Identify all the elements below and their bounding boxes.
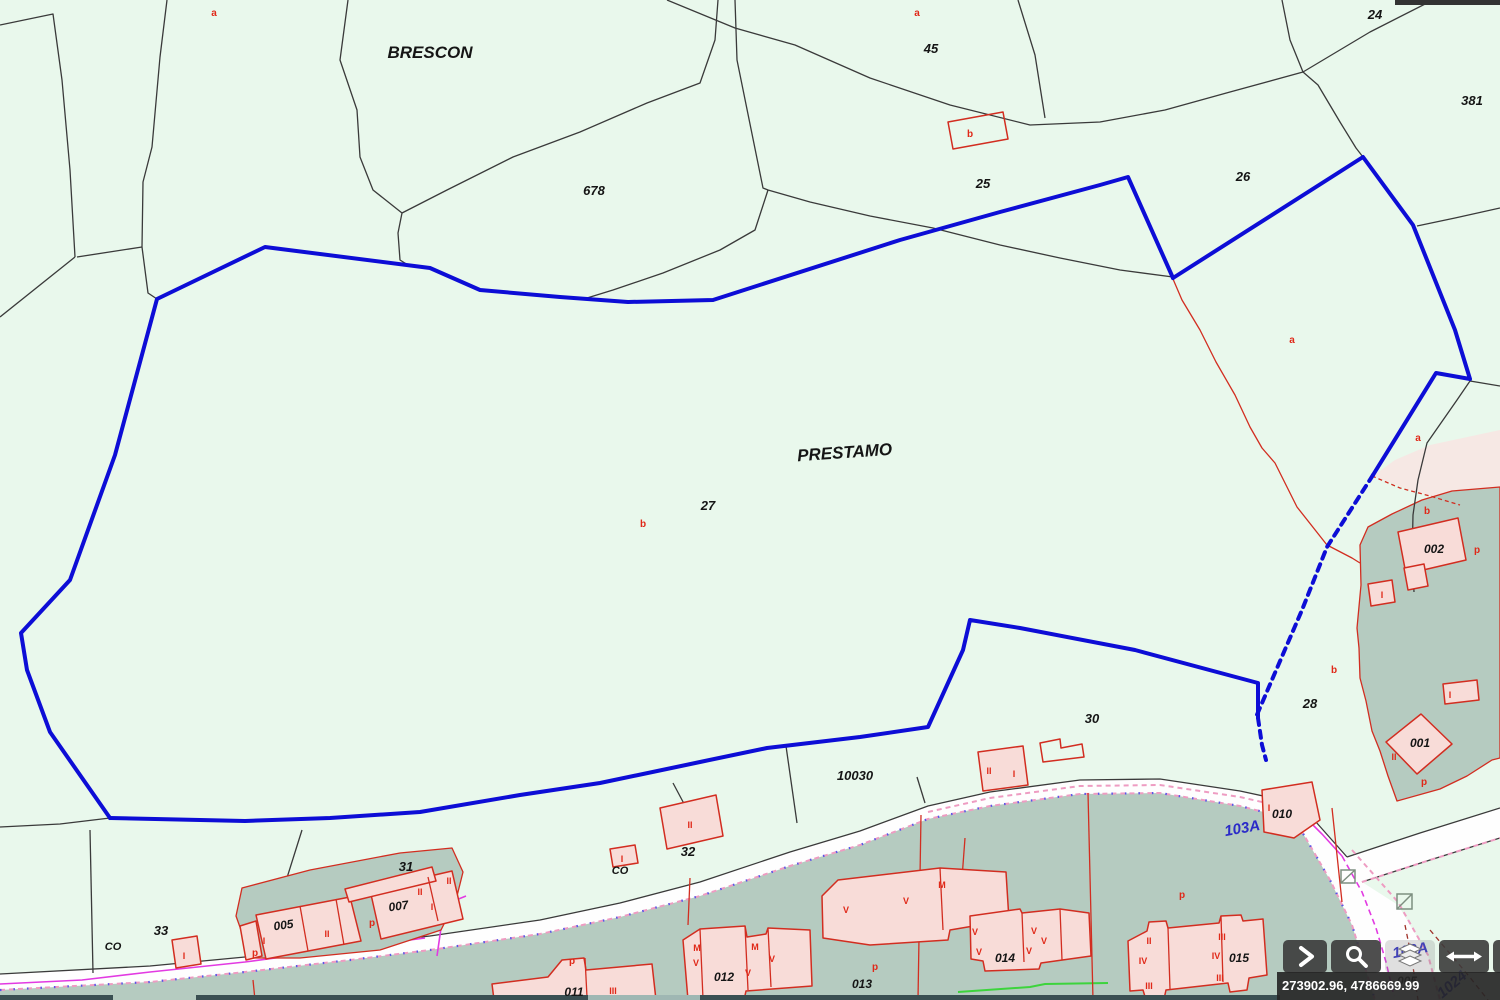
subparcel-code-label: p (252, 948, 258, 959)
subparcel-code-label: V (693, 958, 699, 968)
cadastral-map[interactable]: BRESCONPRESTAMO6784525262438127301003028… (0, 0, 1500, 1000)
subparcel-code-label: a (1415, 433, 1421, 444)
subparcel-code-label: b (1331, 665, 1337, 676)
parcel-label: 002 (1424, 542, 1444, 556)
subparcel-code-label: V (769, 954, 775, 964)
subparcel-code-label: IV (1139, 956, 1148, 966)
subparcel-code-label: b (1424, 506, 1430, 517)
parcel-label: 678 (583, 183, 605, 198)
subparcel-code-label: I (1449, 690, 1452, 700)
subparcel-code-label: V (1031, 926, 1037, 936)
subparcel-code-label: II (986, 766, 991, 776)
next-button[interactable] (1283, 940, 1327, 973)
subparcel-code-label: V (1041, 936, 1047, 946)
parcel-label: 27 (700, 498, 716, 513)
resize-horizontal-icon (1442, 940, 1486, 973)
parcel-label: 32 (681, 844, 696, 859)
subparcel-code-label: p (1474, 545, 1480, 556)
building-002-annex (1404, 564, 1428, 590)
parcel-label: BRESCON (387, 43, 473, 62)
parcel-label: CO (105, 941, 122, 953)
parcel-label: 26 (1235, 169, 1251, 184)
subparcel-code-label: a (914, 8, 920, 19)
parcel-label: 24 (1367, 7, 1383, 22)
parcel-label: 45 (923, 41, 939, 56)
parcel-label: 001 (1410, 736, 1430, 750)
parcel-label: 013 (852, 977, 872, 991)
parcel-label: 31 (399, 859, 413, 874)
subparcel-code-label: II (324, 929, 329, 939)
subparcel-code-label: I (621, 854, 624, 864)
subparcel-code-label: a (211, 8, 217, 19)
subparcel-code-label: p (1179, 890, 1185, 901)
subparcel-code-label: p (369, 918, 375, 929)
subparcel-code-label: II (687, 820, 692, 830)
subparcel-code-label: II (417, 887, 422, 897)
partial-button[interactable] (1493, 940, 1500, 973)
subparcel-code-label: a (1289, 335, 1295, 346)
parcel-label: 012 (714, 970, 734, 984)
layers-icon (1390, 940, 1430, 973)
search-button[interactable] (1331, 940, 1381, 973)
subparcel-code-label: p (569, 956, 575, 967)
subparcel-code-label: b (967, 129, 973, 140)
parcel-label: 25 (975, 176, 991, 191)
parcel-label: CO (612, 865, 629, 877)
subparcel-code-label: V (1026, 946, 1032, 956)
subparcel-code-label: III (1145, 981, 1153, 991)
building-32-small (610, 845, 638, 867)
subparcel-code-label: II (446, 876, 451, 886)
cursor-coordinates: 273902.96, 4786669.99 (1282, 978, 1419, 993)
map-viewer: BRESCONPRESTAMO6784525262438127301003028… (0, 0, 1500, 1000)
parcel-label: 30 (1085, 711, 1100, 726)
layers-button[interactable] (1385, 940, 1435, 973)
subparcel-code-label: M (938, 880, 946, 890)
subparcel-code-label: III (609, 986, 617, 996)
parcel-label: 28 (1302, 696, 1318, 711)
parcel-label: 005 (273, 917, 295, 934)
subparcel-code-label: I (1013, 769, 1016, 779)
subparcel-code-label: V (903, 896, 909, 906)
subparcel-code-label: IV (1212, 951, 1221, 961)
subparcel-code-label: p (872, 962, 878, 973)
parcel-label: 010 (1272, 807, 1292, 821)
subparcel-code-label: V (972, 927, 978, 937)
parcel-label: 007 (388, 898, 411, 915)
parcel-label: 10030 (837, 768, 874, 783)
subparcel-code-label: II (1391, 752, 1396, 762)
subparcel-code-label: III (1218, 932, 1226, 942)
parcel-label: 014 (995, 951, 1015, 965)
coordinates-statusbar: 273902.96, 4786669.99 (1277, 972, 1500, 1000)
subparcel-code-label: I (263, 936, 266, 946)
subparcel-code-label: V (745, 968, 751, 978)
parcel-label: 011 (564, 985, 583, 999)
parcel-label: 33 (154, 923, 169, 938)
subparcel-code-label: b (640, 519, 646, 530)
subparcel-code-label: M (751, 942, 759, 952)
subparcel-code-label: II (1146, 936, 1151, 946)
subparcel-code-label: M (693, 943, 701, 953)
parcel-label: 381 (1461, 93, 1483, 108)
building-33-small (172, 936, 201, 968)
subparcel-code-label: I (431, 902, 434, 912)
top-toolbar-remnant (1395, 0, 1500, 5)
subparcel-code-label: I (1381, 590, 1384, 600)
subparcel-code-label: V (976, 947, 982, 957)
subparcel-code-label: I (183, 951, 186, 961)
chevron-right-icon (1288, 940, 1322, 973)
pan-horizontal-button[interactable] (1439, 940, 1489, 973)
subparcel-code-label: V (843, 905, 849, 915)
search-icon (1336, 940, 1376, 973)
parcel-label: 015 (1229, 951, 1249, 965)
subparcel-code-label: III (1216, 973, 1224, 983)
subparcel-code-label: I (1268, 803, 1271, 813)
subparcel-code-label: p (1421, 777, 1427, 788)
